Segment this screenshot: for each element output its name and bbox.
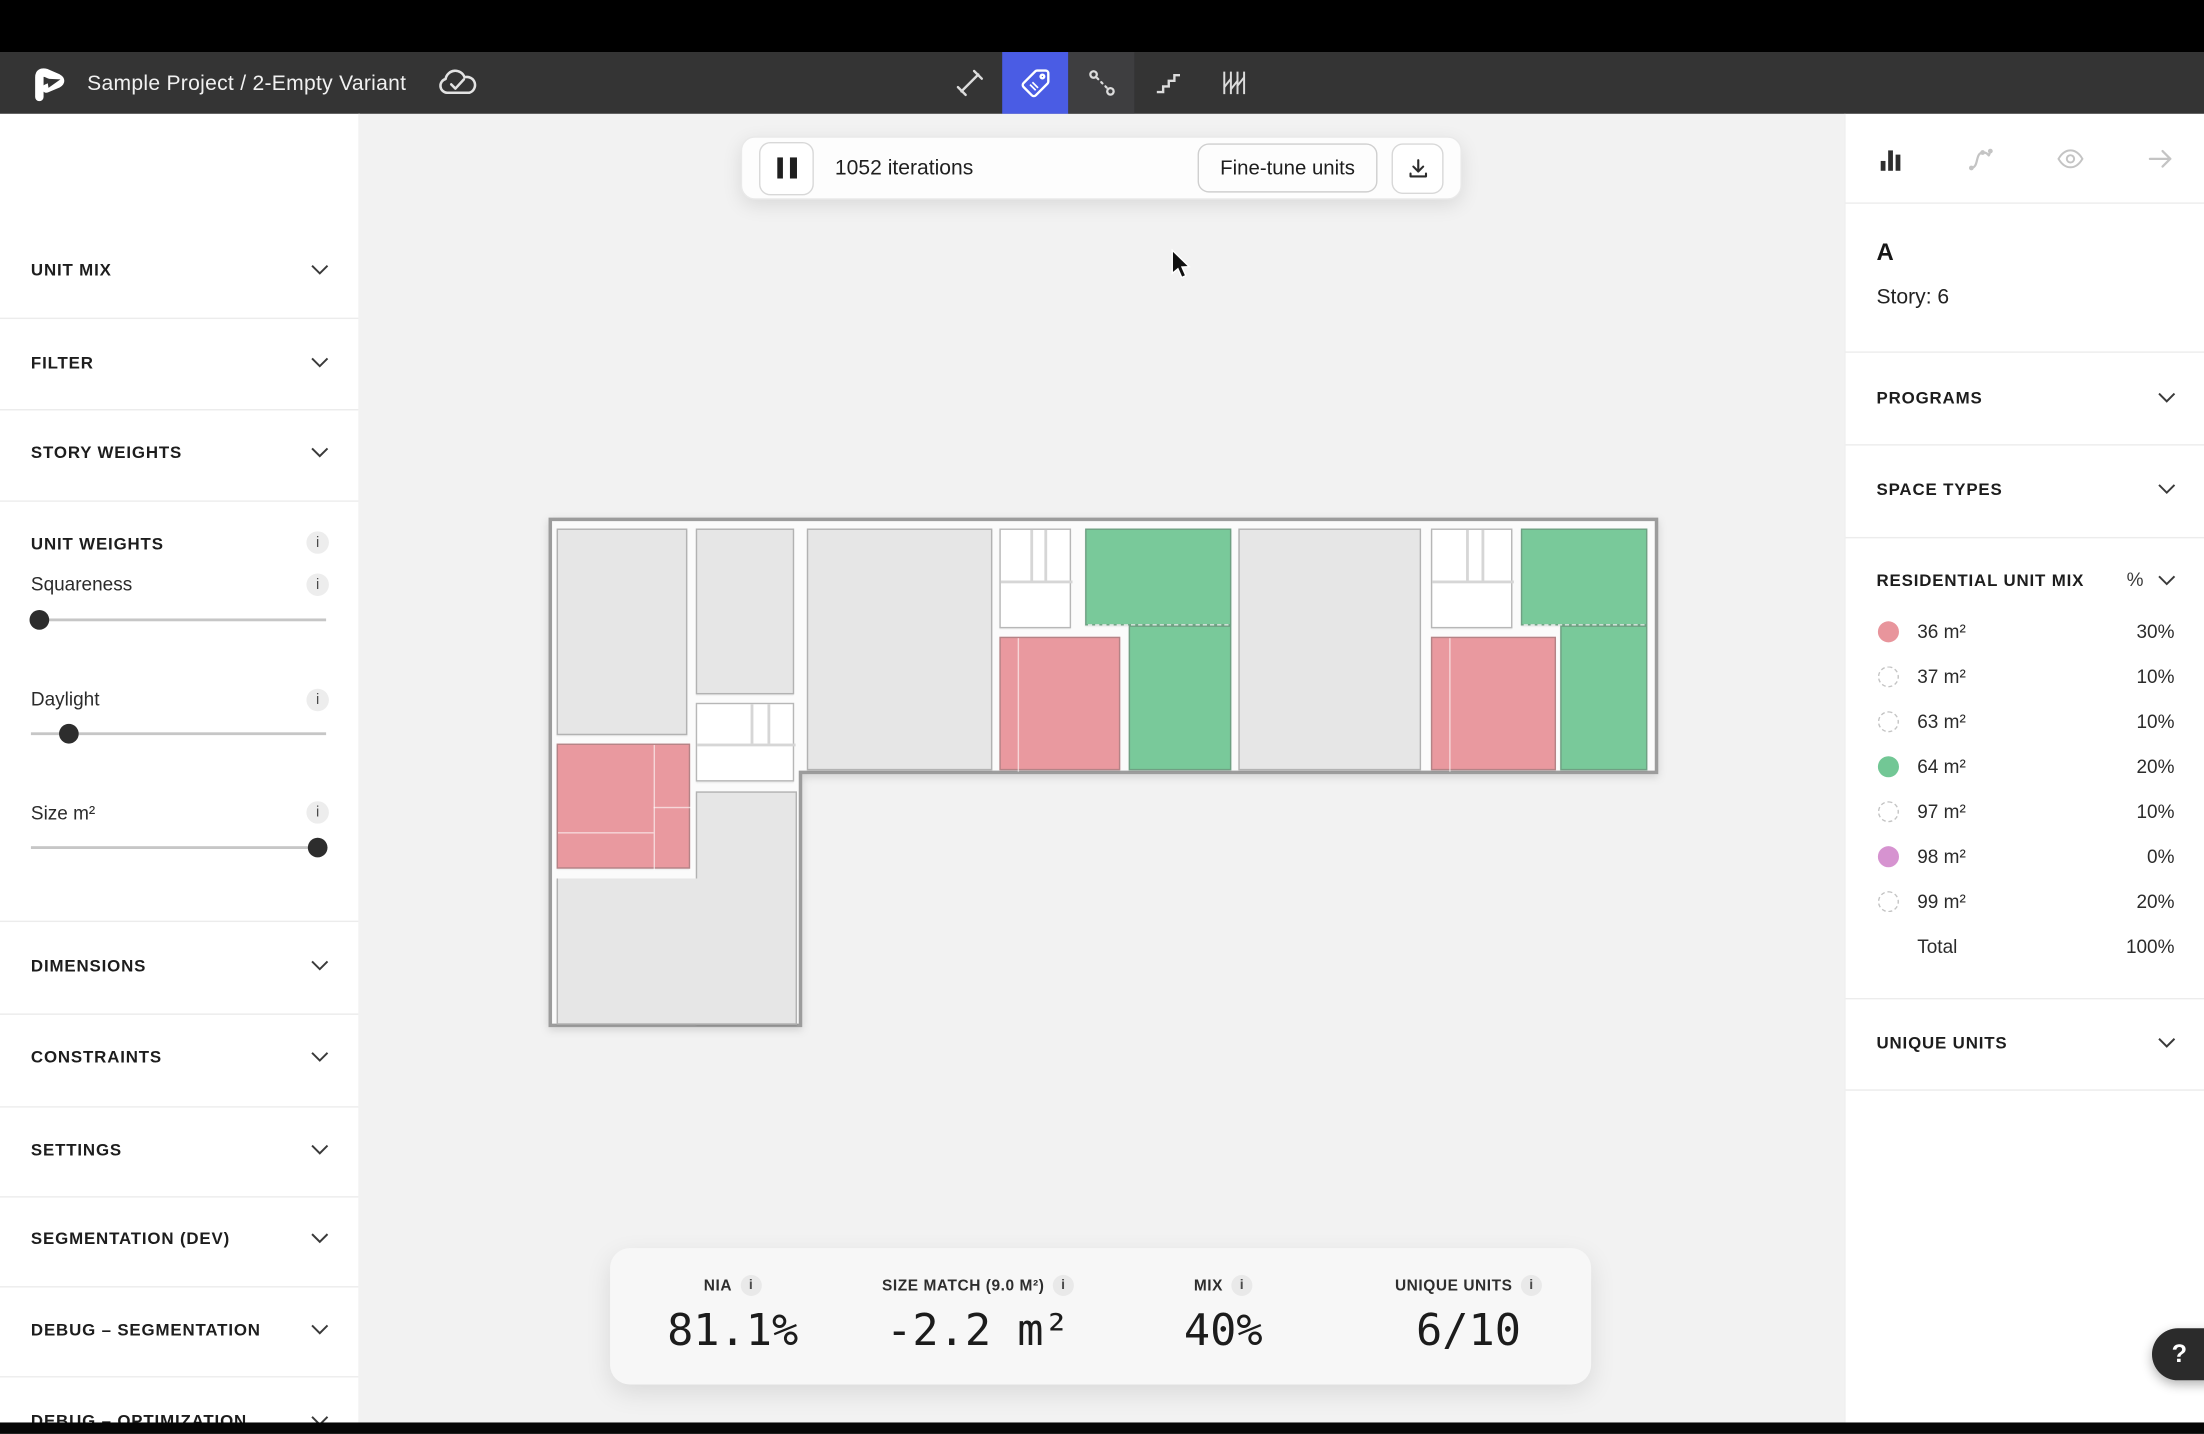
total-value: 100% bbox=[2126, 935, 2175, 956]
pause-button[interactable] bbox=[759, 141, 814, 194]
unit-pct-value: 10% bbox=[2136, 711, 2174, 732]
next-tab[interactable] bbox=[2135, 134, 2186, 185]
divider bbox=[1846, 202, 2204, 203]
divider bbox=[0, 921, 358, 922]
left-sidebar: UNIT MIX FILTER STORY WEIGHTS UNIT WEIGH… bbox=[0, 114, 360, 1423]
daylight-slider-knob[interactable] bbox=[59, 724, 79, 744]
info-icon[interactable]: i bbox=[1053, 1275, 1074, 1296]
unit-64m2[interactable] bbox=[1085, 529, 1231, 626]
chevron-down-icon[interactable] bbox=[311, 1144, 329, 1155]
story-label: Story: 6 bbox=[1876, 285, 1949, 309]
unit-color-swatch bbox=[1878, 890, 1899, 911]
divider bbox=[1846, 444, 2204, 445]
kpi-size-match: SIZE MATCH (9.0 M²)i -2.2 m² bbox=[855, 1248, 1100, 1384]
unit-color-swatch bbox=[1878, 756, 1899, 777]
divider bbox=[0, 318, 358, 319]
divider bbox=[0, 500, 358, 501]
visibility-tab[interactable] bbox=[2045, 134, 2096, 185]
finch-logo-icon[interactable] bbox=[28, 65, 65, 102]
arrow-right-icon bbox=[2145, 143, 2176, 174]
top-black-strip bbox=[0, 0, 2204, 52]
chevron-down-icon[interactable] bbox=[311, 960, 329, 971]
hatch-icon bbox=[1217, 66, 1251, 100]
unit-64m2[interactable] bbox=[1560, 625, 1647, 770]
info-icon[interactable]: i bbox=[306, 531, 328, 553]
unit-64m2[interactable] bbox=[1129, 625, 1232, 770]
section-constraints[interactable]: CONSTRAINTS bbox=[31, 1047, 162, 1067]
kpi-nia: NIAi 81.1% bbox=[610, 1248, 855, 1384]
unit-mix-row[interactable]: 36 m² 30% bbox=[1846, 609, 2204, 654]
floor-plan[interactable] bbox=[548, 517, 1661, 1029]
info-icon[interactable]: i bbox=[306, 573, 328, 595]
toolbar bbox=[936, 52, 1266, 114]
section-story-weights[interactable]: STORY WEIGHTS bbox=[31, 443, 182, 463]
chevron-down-icon[interactable] bbox=[311, 357, 329, 368]
unit-36m2[interactable] bbox=[557, 744, 691, 869]
section-segmentation-dev[interactable]: SEGMENTATION (DEV) bbox=[31, 1229, 230, 1249]
finch-app: Sample Project / 2-Empty Variant bbox=[0, 0, 2204, 1434]
unit-seam bbox=[1088, 624, 1229, 625]
section-unique-units[interactable]: UNIQUE UNITS bbox=[1876, 1033, 2007, 1053]
size-slider[interactable] bbox=[31, 846, 326, 849]
chevron-down-icon[interactable] bbox=[311, 1233, 329, 1244]
unit-color-swatch bbox=[1878, 800, 1899, 821]
bar-chart-icon bbox=[1875, 143, 1906, 174]
right-panel: A Story: 6 PROGRAMS SPACE TYPES RESIDENT… bbox=[1844, 114, 2204, 1423]
chevron-down-icon[interactable] bbox=[2158, 392, 2176, 403]
info-icon[interactable]: i bbox=[306, 801, 328, 823]
unit-size-label: 64 m² bbox=[1917, 756, 1966, 777]
kpi-value: 81.1% bbox=[667, 1306, 798, 1357]
unit-toggle-percent[interactable]: % bbox=[2127, 569, 2144, 590]
distance-tool[interactable] bbox=[1068, 52, 1134, 114]
divider bbox=[1846, 1089, 2204, 1090]
section-filter[interactable]: FILTER bbox=[31, 353, 94, 373]
stairs-icon bbox=[1150, 66, 1184, 100]
measure-tool[interactable] bbox=[936, 52, 1002, 114]
building-name: A bbox=[1876, 239, 1893, 267]
project-breadcrumb[interactable]: Sample Project / 2-Empty Variant bbox=[87, 52, 406, 114]
unit-pct-value: 0% bbox=[2147, 845, 2174, 866]
kpi-mix: MIXi 40% bbox=[1101, 1248, 1346, 1384]
spline-tab[interactable] bbox=[1955, 134, 2006, 185]
divider bbox=[1846, 537, 2204, 538]
unit-size-label: 63 m² bbox=[1917, 711, 1966, 732]
unit-mix-row[interactable]: 99 m² 20% bbox=[1846, 879, 2204, 924]
unit-pct-value: 10% bbox=[2136, 666, 2174, 687]
kpi-label: UNIQUE UNITS bbox=[1395, 1277, 1513, 1294]
spline-icon bbox=[1965, 143, 1996, 174]
size-label: Size m² bbox=[31, 803, 95, 824]
size-slider-knob[interactable] bbox=[307, 838, 327, 858]
tag-icon bbox=[1018, 66, 1052, 100]
unit-color-swatch bbox=[1878, 621, 1899, 642]
divider bbox=[1846, 998, 2204, 999]
info-icon[interactable]: i bbox=[306, 689, 328, 711]
section-programs[interactable]: PROGRAMS bbox=[1876, 388, 1982, 408]
unit-64m2[interactable] bbox=[1521, 529, 1648, 626]
squareness-label: Squareness bbox=[31, 573, 132, 594]
measure-icon bbox=[952, 66, 986, 100]
unit-color-swatch bbox=[1878, 711, 1899, 732]
kpi-label: MIX bbox=[1194, 1277, 1223, 1294]
top-bar: Sample Project / 2-Empty Variant bbox=[0, 52, 2204, 114]
unit-mix-row[interactable]: 64 m² 20% bbox=[1846, 744, 2204, 789]
kpi-value: 40% bbox=[1184, 1306, 1263, 1357]
unit-36m2[interactable] bbox=[999, 637, 1120, 771]
plan-canvas[interactable]: 1052 iterations Fine-tune units bbox=[358, 114, 1844, 1423]
unit-standard[interactable] bbox=[557, 529, 688, 736]
unit-size-label: 98 m² bbox=[1917, 845, 1966, 866]
distance-icon bbox=[1084, 66, 1118, 100]
section-unit-weights: UNIT WEIGHTS bbox=[31, 534, 164, 554]
kpi-value: 6/10 bbox=[1416, 1306, 1521, 1357]
stairs-tool[interactable] bbox=[1134, 52, 1200, 114]
unit-mix-list: 36 m² 30% 37 m² 10% 63 m² 10% 64 m² 20% … bbox=[1846, 609, 2204, 969]
unit-color-swatch bbox=[1878, 845, 1899, 866]
unit-size-label: 36 m² bbox=[1917, 621, 1966, 642]
divider bbox=[0, 1106, 358, 1107]
section-dimensions[interactable]: DIMENSIONS bbox=[31, 956, 146, 976]
unit-color-swatch bbox=[1878, 666, 1899, 687]
daylight-slider[interactable] bbox=[31, 732, 326, 735]
eye-icon bbox=[2055, 143, 2086, 174]
unit-mix-row[interactable]: 63 m² 10% bbox=[1846, 699, 2204, 744]
kpi-label: NIA bbox=[704, 1277, 732, 1294]
chevron-down-icon[interactable] bbox=[311, 447, 329, 458]
kpi-panel: NIAi 81.1% SIZE MATCH (9.0 M²)i -2.2 m² … bbox=[610, 1248, 1591, 1384]
kpi-value: -2.2 m² bbox=[886, 1306, 1070, 1357]
stair-core[interactable] bbox=[696, 703, 794, 782]
daylight-label: Daylight bbox=[31, 689, 100, 710]
squareness-slider-knob[interactable] bbox=[30, 610, 50, 630]
cloud-check-icon[interactable] bbox=[436, 67, 481, 98]
kpi-unique-units: UNIQUE UNITSi 6/10 bbox=[1346, 1248, 1591, 1384]
chevron-down-icon[interactable] bbox=[2158, 1037, 2176, 1048]
optimization-run-bar: 1052 iterations Fine-tune units bbox=[741, 136, 1462, 199]
hatch-tool[interactable] bbox=[1200, 52, 1266, 114]
bottom-black-strip bbox=[0, 1422, 2204, 1433]
info-icon[interactable]: i bbox=[1231, 1275, 1252, 1296]
section-debug-segmentation[interactable]: DEBUG – SEGMENTATION bbox=[31, 1320, 261, 1340]
divider bbox=[0, 1286, 358, 1287]
kpi-label: SIZE MATCH (9.0 M²) bbox=[882, 1277, 1044, 1294]
chevron-down-icon[interactable] bbox=[311, 1324, 329, 1335]
screen: Sample Project / 2-Empty Variant bbox=[0, 0, 2204, 1434]
download-icon bbox=[1405, 155, 1430, 180]
divider bbox=[0, 1013, 358, 1014]
unit-mix-total-row: Total 100% bbox=[1846, 923, 2204, 968]
divider bbox=[1846, 351, 2204, 352]
unit-standard[interactable] bbox=[696, 529, 794, 695]
unit-pct-value: 10% bbox=[2136, 800, 2174, 821]
section-space-types[interactable]: SPACE TYPES bbox=[1876, 479, 2002, 499]
info-icon[interactable]: i bbox=[1521, 1275, 1542, 1296]
chevron-down-icon[interactable] bbox=[2158, 575, 2176, 586]
unit-mix-row[interactable]: 98 m² 0% bbox=[1846, 834, 2204, 879]
stair-core[interactable] bbox=[999, 529, 1071, 629]
unit-36m2[interactable] bbox=[1431, 637, 1556, 771]
divider bbox=[0, 1196, 358, 1197]
total-label: Total bbox=[1917, 935, 1957, 956]
mouse-cursor bbox=[1171, 249, 1193, 280]
pause-icon bbox=[777, 157, 783, 178]
divider bbox=[0, 409, 358, 410]
unit-size-label: 99 m² bbox=[1917, 890, 1966, 911]
unit-standard[interactable] bbox=[1238, 529, 1421, 771]
download-button[interactable] bbox=[1392, 143, 1444, 194]
chevron-down-icon[interactable] bbox=[2158, 484, 2176, 495]
unit-pct-value: 30% bbox=[2136, 621, 2174, 642]
help-button[interactable]: ? bbox=[2152, 1328, 2204, 1380]
squareness-slider[interactable] bbox=[31, 618, 326, 621]
tag-tool[interactable] bbox=[1002, 52, 1068, 114]
unit-pct-value: 20% bbox=[2136, 890, 2174, 911]
unit-size-label: 37 m² bbox=[1917, 666, 1966, 687]
chevron-down-icon[interactable] bbox=[311, 1051, 329, 1062]
fine-tune-units-button[interactable]: Fine-tune units bbox=[1198, 143, 1378, 192]
iterations-counter: 1052 iterations bbox=[835, 156, 973, 180]
stair-core[interactable] bbox=[1431, 529, 1513, 629]
unit-mix-row[interactable]: 37 m² 10% bbox=[1846, 654, 2204, 699]
chevron-down-icon[interactable] bbox=[311, 264, 329, 275]
section-settings[interactable]: SETTINGS bbox=[31, 1140, 122, 1160]
unit-standard[interactable] bbox=[557, 879, 797, 1025]
divider bbox=[0, 1376, 358, 1377]
section-unit-mix[interactable]: UNIT MIX bbox=[31, 260, 112, 280]
unit-standard[interactable] bbox=[807, 529, 993, 771]
unit-seam bbox=[1524, 624, 1645, 625]
unit-pct-value: 20% bbox=[2136, 756, 2174, 777]
unit-mix-row[interactable]: 97 m² 10% bbox=[1846, 789, 2204, 834]
pause-icon bbox=[790, 157, 796, 178]
bar-chart-tab[interactable] bbox=[1865, 134, 1916, 185]
section-residential-unit-mix[interactable]: RESIDENTIAL UNIT MIX bbox=[1876, 571, 2084, 591]
info-icon[interactable]: i bbox=[741, 1275, 762, 1296]
unit-size-label: 97 m² bbox=[1917, 800, 1966, 821]
